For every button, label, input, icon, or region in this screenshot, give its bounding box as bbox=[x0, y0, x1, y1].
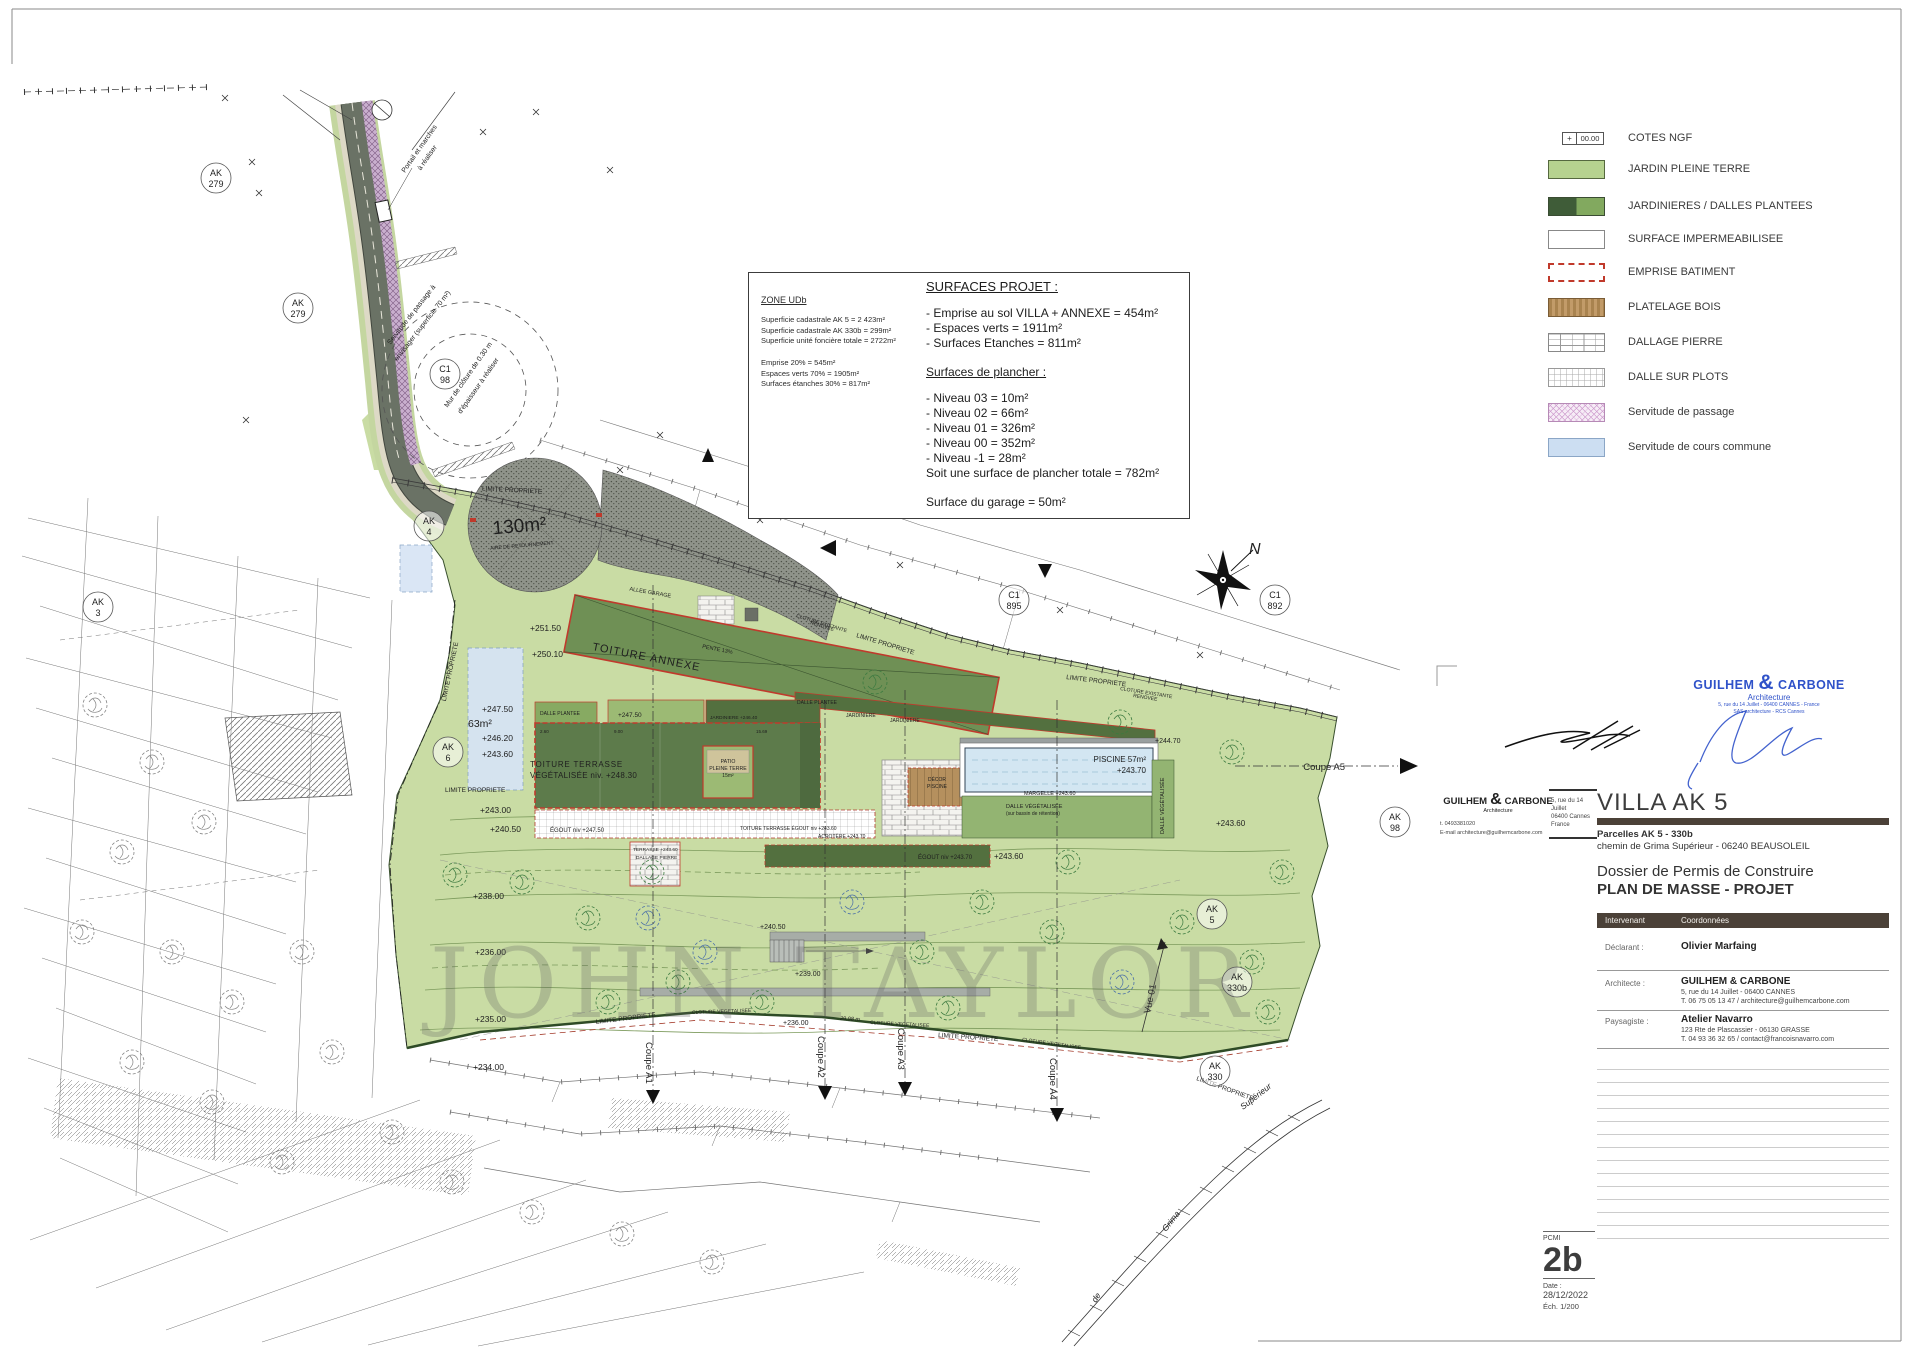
parcel-marker: AK330 bbox=[1200, 1056, 1230, 1086]
plan-label: +251.50 bbox=[530, 623, 561, 633]
plan-label: Coupe A3 bbox=[895, 1028, 906, 1070]
parcel-marker: AK330b bbox=[1222, 967, 1252, 997]
swatch-jardinieres bbox=[1548, 197, 1605, 216]
parcel-id: 98 bbox=[1390, 823, 1400, 833]
project-title: VILLA AK 5 bbox=[1597, 789, 1728, 817]
page-number-block: PCMI 2b Date : 28/12/2022 Éch. 1/200 bbox=[1543, 1231, 1603, 1311]
plan-label: 29.98 m bbox=[839, 1016, 861, 1023]
plan-label: +246.20 bbox=[482, 733, 513, 743]
swatch-pierre bbox=[1548, 333, 1605, 352]
row-paysagiste-role: Paysagiste : bbox=[1605, 1017, 1649, 1026]
plan-label: LIMITE PROPRIETE bbox=[445, 787, 506, 794]
plan-label: de bbox=[1089, 1291, 1103, 1305]
parcel-id: 279 bbox=[290, 309, 305, 319]
surface-line: - Emprise au sol VILLA + ANNEXE = 454m² bbox=[926, 306, 1158, 321]
zone-line: Espaces verts 70% = 1905m² bbox=[761, 369, 870, 380]
plan-label: +243.60 bbox=[482, 749, 513, 759]
parcel-id: AK bbox=[210, 168, 222, 178]
parcel-id: 5 bbox=[1209, 915, 1214, 925]
parcel-id: C1 bbox=[1008, 590, 1020, 600]
plan-label: Coupe A5 bbox=[1303, 762, 1345, 773]
plan-de-masse-sheet: Portail et marchesà réaliserServitude de… bbox=[0, 0, 1920, 1349]
parcel-id: AK bbox=[1206, 904, 1218, 914]
plan-label: Grima bbox=[1160, 1209, 1182, 1234]
wall-hatch bbox=[395, 247, 457, 269]
table-rule bbox=[1597, 1048, 1889, 1049]
firm-tel: t. 0493381020 bbox=[1440, 821, 1475, 827]
parcel-marker: C1895 bbox=[999, 585, 1029, 615]
surface-line: - Espaces verts = 1911m² bbox=[926, 321, 1158, 336]
chemin-grima bbox=[1062, 1100, 1330, 1346]
parcel-marker: AK5 bbox=[1197, 899, 1227, 929]
parcel-id: AK bbox=[1231, 972, 1243, 982]
plan-label: +240.50 bbox=[490, 824, 521, 834]
plancher-line: - Niveau 02 = 66m² bbox=[926, 406, 1159, 421]
plan-label: +250.10 bbox=[532, 649, 563, 659]
firm-email: E-mail architecture@guilhemcarbone.com bbox=[1440, 830, 1543, 836]
plan-label: 9.00 bbox=[614, 729, 623, 734]
parcel-id: C1 bbox=[1269, 590, 1281, 600]
row-paysagiste-line: 123 Rte de Plascassier - 06130 GRASSE bbox=[1681, 1027, 1810, 1034]
rule bbox=[1543, 1231, 1595, 1232]
plan-name: PLAN DE MASSE - PROJET bbox=[1597, 881, 1794, 898]
zone-line: Emprise 20% = 545m² bbox=[761, 358, 870, 369]
swatch-bois bbox=[1548, 298, 1605, 317]
parcel-id: 98 bbox=[440, 375, 450, 385]
row-paysagiste-name: Atelier Navarro bbox=[1681, 1014, 1753, 1025]
parcel-marker: AK3 bbox=[83, 592, 113, 622]
legend: + 00.00 COTES NGF JARDIN PLEINE TERRE JA… bbox=[1548, 122, 1900, 467]
parcel-id: AK bbox=[292, 298, 304, 308]
plancher-line: - Niveau 00 = 352m² bbox=[926, 436, 1159, 451]
parcel-id: 6 bbox=[445, 753, 450, 763]
plan-label: +238.00 bbox=[473, 891, 504, 901]
plan-label: TERRASSE +243.60 bbox=[633, 847, 678, 853]
plan-label: +244.70 bbox=[1155, 738, 1181, 745]
plan-label: +243.60 bbox=[1216, 819, 1246, 828]
plan-label: ÉGOUT niv +247.50 bbox=[550, 827, 605, 834]
swatch-plots bbox=[1548, 368, 1605, 387]
plan-label: +236.00 bbox=[783, 1020, 809, 1027]
page-number: 2b bbox=[1543, 1242, 1603, 1278]
parcel-id: 330 bbox=[1207, 1072, 1222, 1082]
plan-label: PATIO bbox=[721, 759, 736, 765]
plan-label: JARDINIERE +246.40 bbox=[710, 715, 758, 721]
ampersand-logo: & bbox=[1758, 671, 1774, 695]
plan-label: +243.70 bbox=[1117, 766, 1147, 775]
table-rule bbox=[1597, 1010, 1889, 1011]
plan-label: ÉGOUT niv +243.70 bbox=[918, 854, 973, 861]
plan-label: DALLE VÉGÉTALISÉE bbox=[1006, 803, 1063, 810]
plan-label: (sur bassin de rétention) bbox=[1006, 811, 1060, 817]
parcel-id: 279 bbox=[208, 179, 223, 189]
garage-line: Surface du garage = 50m² bbox=[926, 495, 1066, 509]
plan-label: DALLE VÉGÉTALISÉE bbox=[1159, 777, 1166, 834]
plan-label: PISCINE 57m² bbox=[1094, 755, 1147, 764]
row-paysagiste-line: T. 04 93 36 32 65 / contact@francoisnava… bbox=[1681, 1036, 1834, 1043]
plan-label: +240.50 bbox=[760, 924, 786, 931]
row-architecte-line: 5, rue du 14 Juillet - 06400 CANNES bbox=[1681, 989, 1795, 996]
zone-line: Surfaces étanches 30% = 817m² bbox=[761, 379, 870, 390]
surfaces-info-box: ZONE UDb Superficie cadastrale AK 5 = 2 … bbox=[748, 272, 1190, 519]
surfaces-title: SURFACES PROJET : bbox=[926, 279, 1058, 294]
plan-label: DALLE PLANTEE bbox=[540, 711, 581, 717]
parcel-id: AK bbox=[1389, 812, 1401, 822]
zone-title: ZONE UDb bbox=[761, 295, 807, 305]
parcel-marker: AK98 bbox=[1380, 807, 1410, 837]
parcels-line: Parcelles AK 5 - 330b bbox=[1597, 829, 1693, 840]
plan-label: 15m² bbox=[722, 773, 734, 779]
plan-label: TOITURE TERRASSE ÉGOUT niv +243.60 bbox=[740, 825, 837, 832]
dossier-line: Dossier de Permis de Construire bbox=[1597, 863, 1814, 880]
row-architecte-line: T. 06 75 05 13 47 / architecture@guilhem… bbox=[1681, 998, 1850, 1005]
plan-label: JARDINIERE bbox=[890, 718, 920, 724]
plan-label: TOITURE TERRASSE bbox=[530, 760, 623, 769]
row-architecte-role: Architecte : bbox=[1605, 979, 1645, 988]
title-bar bbox=[1597, 818, 1889, 825]
parcel-id: AK bbox=[423, 516, 435, 526]
parcel-id: 892 bbox=[1267, 601, 1282, 611]
parcel-marker: AK6 bbox=[433, 737, 463, 767]
plan-label: N bbox=[1249, 541, 1261, 558]
table-rule bbox=[1597, 970, 1889, 971]
date-value: 28/12/2022 bbox=[1543, 1290, 1603, 1300]
empty-table-lines bbox=[1597, 1057, 1889, 1241]
plancher-line: - Niveau -1 = 28m² bbox=[926, 451, 1159, 466]
scale-value: Éch. 1/200 bbox=[1543, 1302, 1603, 1311]
plan-label: 2.60 bbox=[540, 729, 549, 734]
plan-label: +239.00 bbox=[795, 971, 821, 978]
plan-label: MARGELLE +243.60 bbox=[1024, 791, 1076, 797]
plan-label: +247.50 bbox=[482, 704, 513, 714]
swatch-jardin bbox=[1548, 160, 1605, 179]
ampersand-logo: & bbox=[1490, 791, 1502, 809]
cote-symbol: + 00.00 bbox=[1562, 132, 1604, 145]
plan-label: Coupe A1 bbox=[643, 1042, 654, 1084]
parcel-marker: C1892 bbox=[1260, 585, 1290, 615]
architect-stamp: GUILHEM & CARBONE Architecture 5, rue du… bbox=[1685, 671, 1853, 715]
zone-line: Superficie unité foncière totale = 2722m… bbox=[761, 336, 896, 347]
swatch-passage bbox=[1548, 403, 1605, 422]
parcel-id: 3 bbox=[95, 608, 100, 618]
swatch-impermeable bbox=[1548, 230, 1605, 249]
plan-label: Coupe A2 bbox=[815, 1036, 826, 1078]
project-address: chemin de Grima Supérieur - 06240 BEAUSO… bbox=[1597, 841, 1810, 852]
plan-label: DÉCOR bbox=[928, 776, 946, 783]
row-declarant-name: Olivier Marfaing bbox=[1681, 941, 1757, 952]
plancher-line: - Niveau 03 = 10m² bbox=[926, 391, 1159, 406]
parcel-id: 895 bbox=[1006, 601, 1021, 611]
plan-label: PLEINE TERRE bbox=[709, 766, 747, 772]
plan-label: +243.60 bbox=[994, 852, 1024, 861]
parcel-id: 330b bbox=[1227, 983, 1247, 993]
plan-label: +247.50 bbox=[618, 712, 642, 719]
swatch-emprise bbox=[1548, 263, 1605, 282]
plan-label: +243.00 bbox=[480, 805, 511, 815]
coupe-a5-arrow bbox=[1400, 758, 1418, 774]
parcel-id: AK bbox=[442, 742, 454, 752]
parcel-marker: C198 bbox=[430, 359, 460, 389]
plan-label: DALLAGE PIERRE bbox=[636, 855, 677, 861]
parcel-id: 4 bbox=[426, 527, 431, 537]
plan-label: +236.00 bbox=[475, 947, 506, 957]
north-arrow bbox=[1195, 550, 1253, 610]
zone-line: Superficie cadastrale AK 330b = 299m² bbox=[761, 326, 896, 337]
zone-line: Superficie cadastrale AK 5 = 2 423m² bbox=[761, 315, 896, 326]
firm-logo: GUILHEM & CARBONE Architecture bbox=[1443, 791, 1553, 814]
plan-label: 15.69 bbox=[756, 729, 768, 734]
parcel-marker: AK279 bbox=[283, 293, 313, 323]
plan-label: ACROTÈRE +243.70 bbox=[818, 833, 866, 840]
plan-label: PISCINE bbox=[927, 784, 948, 790]
neighbor-roof-hatch bbox=[225, 712, 352, 801]
plan-label: VÉGÉTALISÉE niv. +248.30 bbox=[530, 771, 637, 780]
row-architecte-name: GUILHEM & CARBONE bbox=[1681, 976, 1790, 987]
parcel-marker: AK279 bbox=[201, 163, 231, 193]
parcel-id: C1 bbox=[439, 364, 451, 374]
patio bbox=[703, 746, 753, 798]
table-header: Intervenant Coordonnées bbox=[1597, 913, 1889, 928]
plancher-line: - Niveau 01 = 326m² bbox=[926, 421, 1159, 436]
parcel-marker: AK4 bbox=[414, 511, 444, 541]
parcel-id: AK bbox=[1209, 1061, 1221, 1071]
plan-label: 63m² bbox=[468, 718, 492, 730]
plancher-subtitle: Surfaces de plancher : bbox=[926, 365, 1046, 379]
plan-label: Coupe A4 bbox=[1047, 1058, 1058, 1100]
firm-address: 5, rue du 14 Juillet 06400 Cannes France bbox=[1549, 789, 1597, 839]
title-block: GUILHEM & CARBONE Architecture 5, rue du… bbox=[1437, 665, 1903, 1343]
date-label: Date : bbox=[1543, 1283, 1603, 1290]
plan-label: +235.00 bbox=[475, 1014, 506, 1024]
swatch-cours bbox=[1548, 438, 1605, 457]
plan-label: JARDINIERE bbox=[846, 713, 876, 719]
surface-line: - Surfaces Etanches = 811m² bbox=[926, 336, 1158, 351]
plan-label: +234.00 bbox=[473, 1062, 504, 1072]
row-declarant-role: Déclarant : bbox=[1605, 943, 1644, 952]
plan-label: DALLE PLANTEE bbox=[797, 700, 838, 706]
plancher-total: Soit une surface de plancher totale = 78… bbox=[926, 466, 1159, 481]
parcel-id: AK bbox=[92, 597, 104, 607]
